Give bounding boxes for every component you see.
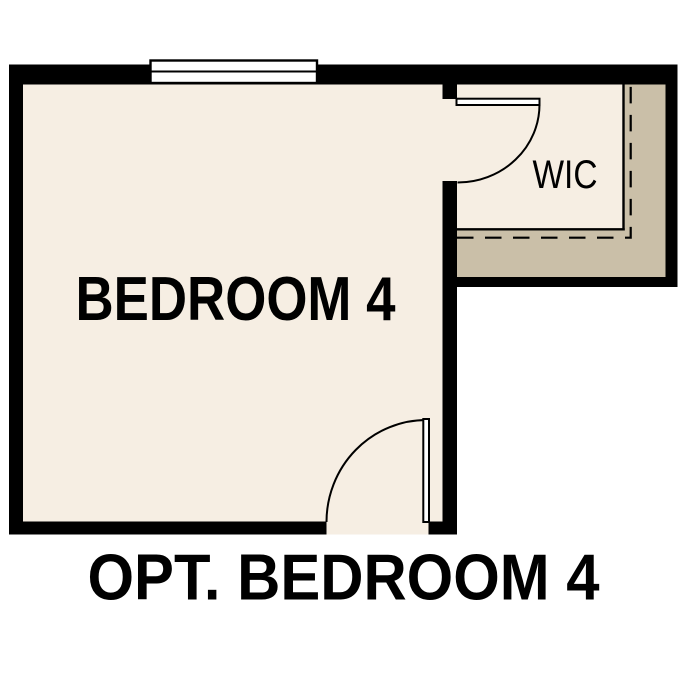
svg-text:BEDROOM 4: BEDROOM 4 [76,265,396,334]
svg-text:OPT. BEDROOM 4: OPT. BEDROOM 4 [88,542,600,614]
svg-text:WIC: WIC [533,153,598,197]
